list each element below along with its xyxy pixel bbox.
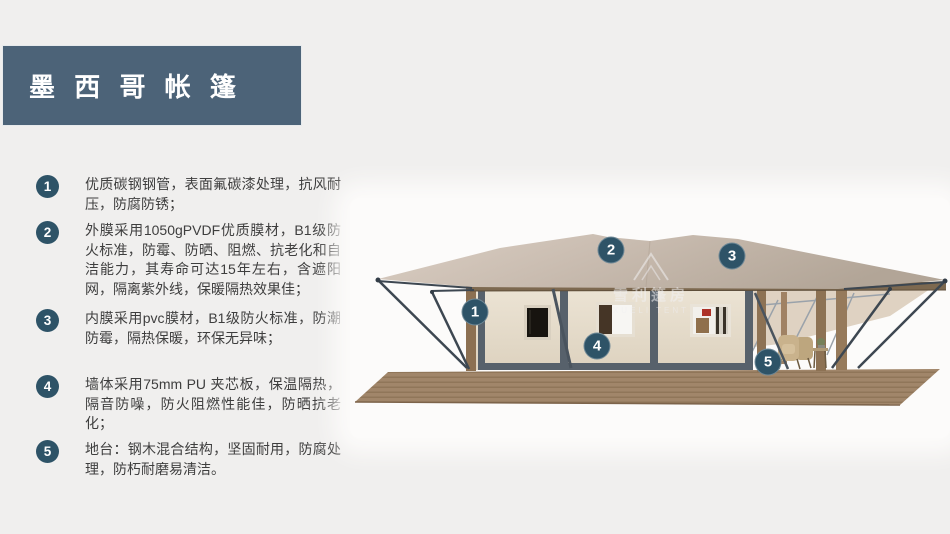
feature-text: 优质碳钢钢管，表面氟碳漆处理，抗风耐压，防腐防锈； bbox=[85, 175, 341, 214]
list-item: 2 外膜采用1050gPVDF优质膜材，B1级防火标准，防霉、防晒、阻燃、抗老化… bbox=[36, 221, 341, 299]
tent-photo: 雪利篷房 XUELI TENT 1 2 3 4 5 bbox=[350, 198, 950, 438]
watermark-cn: 雪利篷房 bbox=[613, 286, 689, 304]
list-item: 3 内膜采用pvc膜材，B1级防火标准，防潮防霉，隔热保暖，环保无异味； bbox=[36, 309, 341, 348]
list-item: 5 地台：钢木混合结构，坚固耐用，防腐处理，防朽耐磨易清洁。 bbox=[36, 440, 341, 479]
guy-rods-left bbox=[376, 278, 475, 370]
callout-badge-1: 1 bbox=[462, 299, 489, 326]
number-badge: 2 bbox=[36, 221, 59, 244]
tent-roof bbox=[378, 234, 945, 289]
number-badge: 1 bbox=[36, 175, 59, 198]
feature-text: 地台：钢木混合结构，坚固耐用，防腐处理，防朽耐磨易清洁。 bbox=[85, 440, 341, 479]
callout-badge-5: 5 bbox=[755, 349, 782, 376]
watermark-en: XUELI TENT bbox=[613, 306, 689, 315]
feature-text: 外膜采用1050gPVDF优质膜材，B1级防火标准，防霉、防晒、阻燃、抗老化和自… bbox=[85, 221, 341, 299]
callout-badge-3: 3 bbox=[719, 243, 746, 270]
list-item: 4 墙体采用75mm PU 夹芯板，保温隔热，隔音防噪，防火阻燃性能佳，防晒抗老… bbox=[36, 375, 341, 434]
window-left bbox=[524, 305, 551, 340]
feature-text: 墙体采用75mm PU 夹芯板，保温隔热，隔音防噪，防火阻燃性能佳，防晒抗老化； bbox=[85, 375, 341, 434]
number-badge: 3 bbox=[36, 309, 59, 332]
feature-list: 1 优质碳钢钢管，表面氟碳漆处理，抗风耐压，防腐防锈； 2 外膜采用1050gP… bbox=[0, 0, 360, 534]
number-badge: 5 bbox=[36, 440, 59, 463]
callout-badge-2: 2 bbox=[598, 237, 625, 264]
number-badge: 4 bbox=[36, 375, 59, 398]
feature-text: 内膜采用pvc膜材，B1级防火标准，防潮防霉，隔热保暖，环保无异味； bbox=[85, 309, 341, 348]
list-item: 1 优质碳钢钢管，表面氟碳漆处理，抗风耐压，防腐防锈； bbox=[36, 175, 341, 214]
corner-post-left bbox=[466, 284, 476, 371]
deck bbox=[355, 369, 940, 405]
window-right bbox=[690, 304, 731, 337]
callout-badge-4: 4 bbox=[584, 333, 611, 360]
tent-render: 雪利篷房 XUELI TENT bbox=[350, 198, 950, 438]
